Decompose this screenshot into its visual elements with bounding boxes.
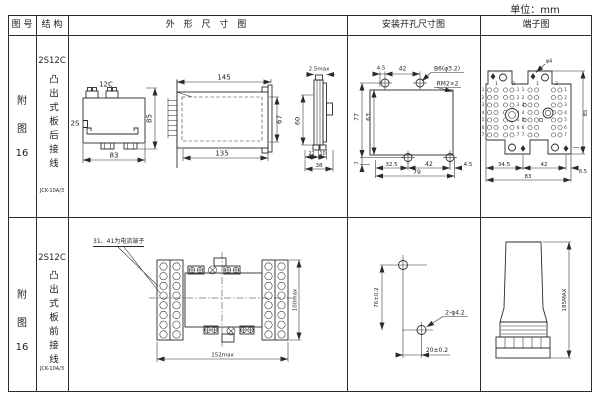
dim-row2-mount-v: 76±0.2 — [374, 287, 380, 307]
dim-row2-width: 152max — [211, 353, 234, 359]
technical-drawing: 12C 2S 83 85 145 135 67 2.5max 60 22 10 … — [0, 0, 600, 400]
dim-edge-d3: 38 — [316, 163, 323, 169]
dim-terminal-btotal: 83 — [525, 174, 532, 180]
mount-thread-label: RM2×2 — [436, 81, 458, 88]
terminal-hole-label: φ4 — [546, 59, 552, 65]
dim-mount-b3: 4.5 — [464, 162, 473, 168]
dim-terminal-height: 85 — [583, 109, 589, 116]
row2-mount-hole-label: 2-φ4.2 — [445, 310, 465, 317]
dim-mount-vouter: 77 — [354, 113, 361, 121]
dim-row2-mount-h: 20±0.2 — [426, 347, 448, 354]
mount-hole-label: B6(φ3.2) — [434, 66, 460, 73]
dim-edge-height: 60 — [294, 117, 302, 125]
terminal-diagram-row1 — [486, 71, 571, 154]
dim-mount-btotal: 79 — [413, 169, 421, 176]
manual-page: { "unit_label": "单位：mm", "header": { "fi… — [0, 0, 600, 400]
dim-edge-d2: 10 — [319, 151, 325, 157]
dim-terminal-b2: 42 — [541, 162, 548, 168]
dim-front-height: 85 — [146, 114, 154, 123]
dim-mount-vsmall: 7 — [355, 161, 361, 165]
dim-side-height: 67 — [276, 115, 284, 124]
dim-mount-t1: 4.5 — [377, 66, 386, 72]
dim-front-width: 83 — [110, 152, 119, 160]
dim-side-total: 145 — [217, 74, 230, 82]
front-wiring-view-row2 — [149, 252, 296, 348]
dim-edge-thickness: 2.5max — [309, 67, 330, 73]
front-view-row1 — [83, 88, 145, 150]
dim-mount-vinner: 63 — [366, 113, 373, 121]
dim-mount-b1: 32.5 — [385, 162, 398, 168]
dim-edge-d1: 22 — [308, 151, 314, 157]
dim-row2-side-height: 185MAX — [562, 288, 568, 311]
dim-front-left: 2S — [71, 120, 80, 128]
dim-terminal-ear: 4 — [580, 146, 583, 152]
mounting-drawing-row2 — [380, 255, 433, 358]
dim-terminal-b1: 34.5 — [498, 162, 511, 168]
dim-side-body: 135 — [215, 150, 228, 158]
dim-terminal-b3: 6.5 — [579, 169, 587, 175]
edge-view-row1 — [313, 75, 333, 150]
dim-mount-t2: 42 — [399, 66, 407, 73]
dim-row2-height: 100max — [293, 288, 299, 311]
note-leader-lines — [118, 247, 160, 293]
side-view-row2 — [496, 242, 550, 358]
dim-front-top: 12C — [99, 81, 113, 89]
dim-mount-b2: 42 — [425, 161, 433, 168]
